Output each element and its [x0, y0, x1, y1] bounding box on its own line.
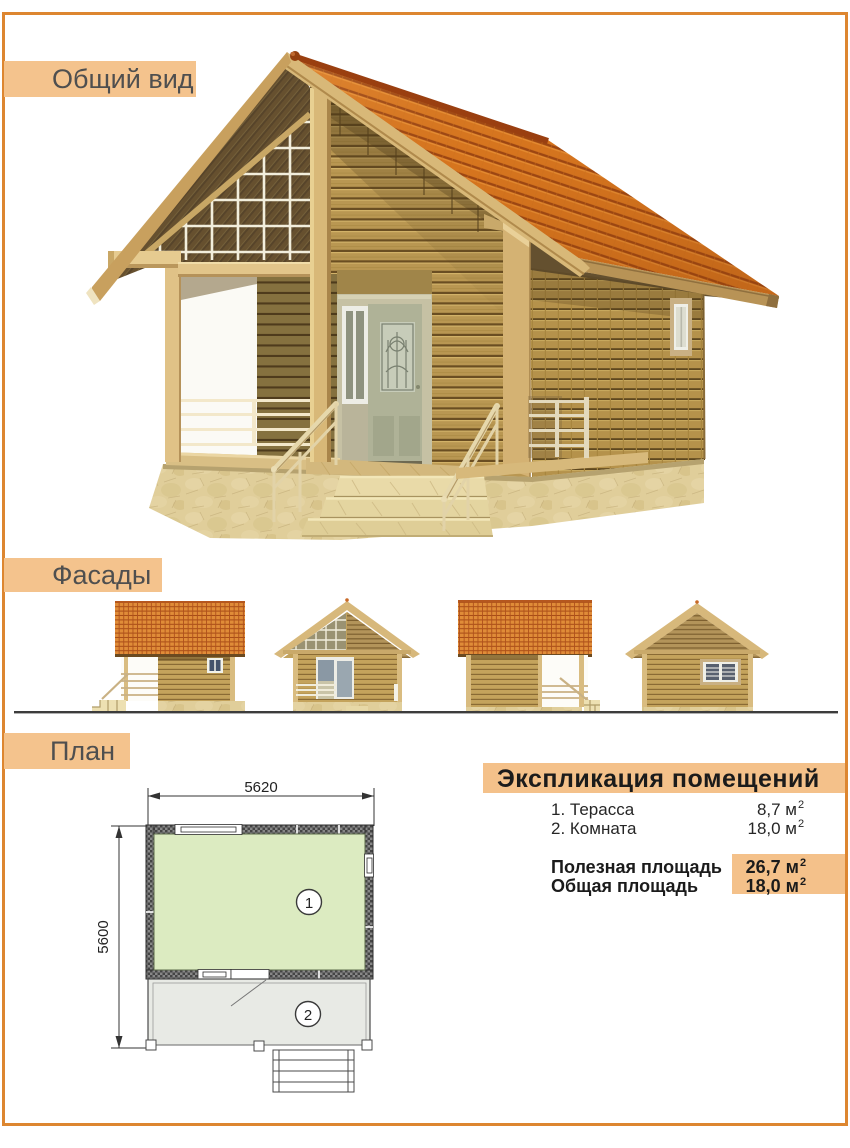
svg-text:2: 2 — [304, 1007, 312, 1024]
svg-text:18,0 м: 18,0 м — [748, 819, 798, 838]
svg-text:26,7 м: 26,7 м — [746, 857, 799, 877]
svg-text:Экспликация помещений: Экспликация помещений — [497, 765, 820, 793]
svg-text:2: 2 — [800, 857, 806, 869]
svg-text:2: 2 — [798, 799, 804, 811]
svg-text:5600: 5600 — [95, 920, 112, 953]
svg-text:Общий вид: Общий вид — [52, 64, 194, 94]
svg-text:1. Терасса: 1. Терасса — [551, 800, 635, 819]
svg-text:2: 2 — [798, 818, 804, 830]
svg-text:5620: 5620 — [244, 779, 277, 796]
svg-text:8,7 м: 8,7 м — [757, 800, 797, 819]
svg-text:1: 1 — [305, 895, 313, 912]
svg-text:18,0 м: 18,0 м — [746, 876, 799, 896]
svg-text:План: План — [50, 736, 115, 766]
svg-text:Полезная площадь: Полезная площадь — [551, 857, 722, 877]
svg-text:2. Комната: 2. Комната — [551, 819, 637, 838]
svg-text:Фасады: Фасады — [52, 560, 151, 590]
svg-text:2: 2 — [800, 876, 806, 888]
svg-text:Общая площадь: Общая площадь — [551, 876, 698, 896]
